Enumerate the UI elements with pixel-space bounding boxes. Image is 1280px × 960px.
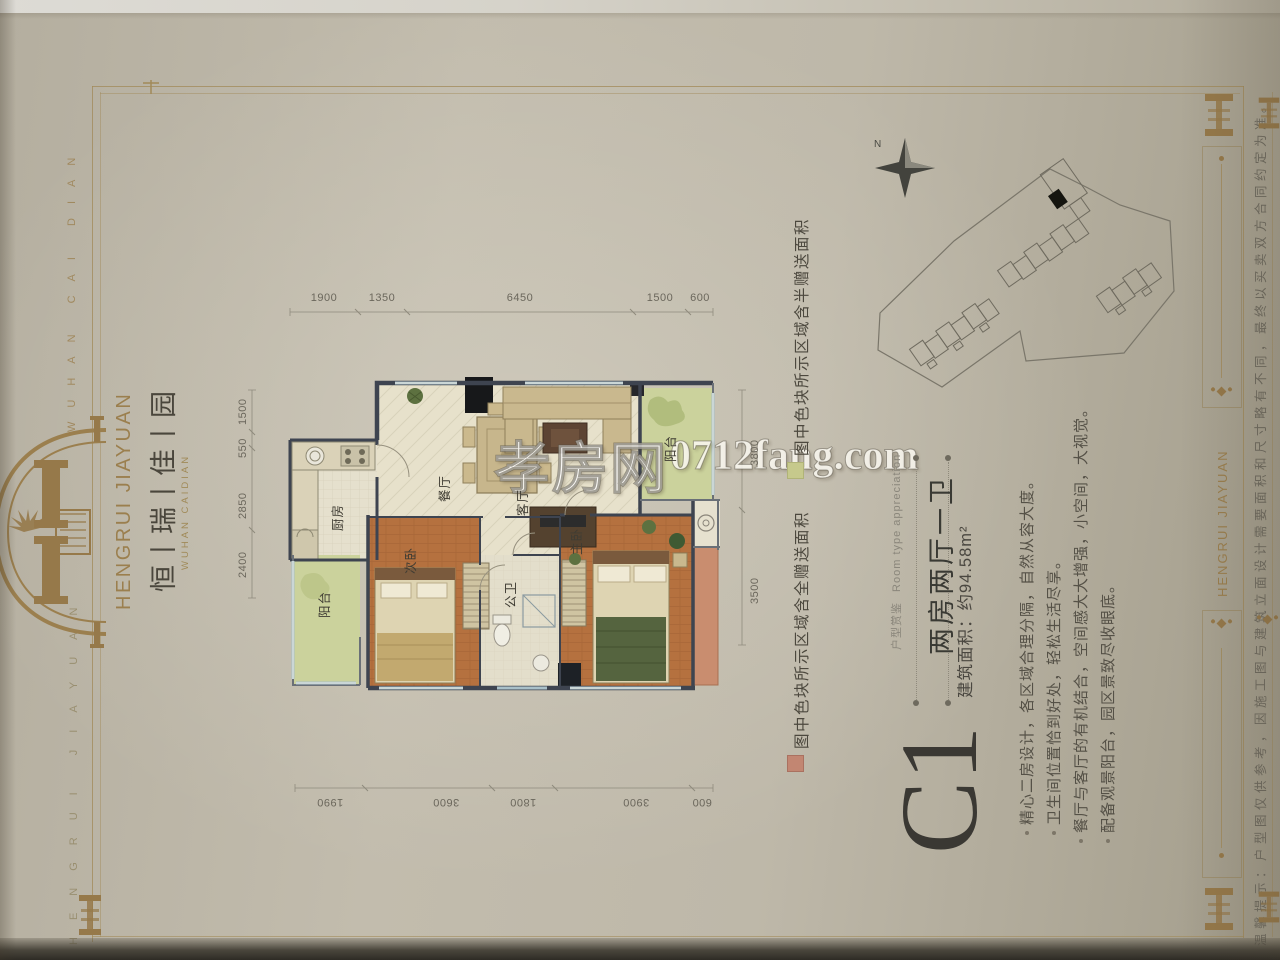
legend-half-text: 图中色块所示区域含半赠送面积 <box>790 218 812 456</box>
room-label-balcony_left: 阳台 <box>314 591 333 618</box>
site-plan: N <box>858 95 1188 405</box>
divider-dot <box>945 455 951 461</box>
feature-2: 卫生间位置恰到好处，轻松生活尽享。 <box>1043 553 1064 835</box>
dim-bottom-1: 3600 <box>433 796 459 808</box>
photo-bottom-edge <box>0 938 1280 960</box>
legend-full-swatch <box>787 755 804 772</box>
dim-left-0: 1500 <box>237 398 249 424</box>
room-label-bedroom2: 次卧 <box>400 547 419 574</box>
section-label-en: Room type appreciation <box>891 454 903 592</box>
corner-seal-icon <box>78 895 102 935</box>
north-label: N <box>874 139 881 150</box>
border-top <box>92 86 1244 87</box>
feature-4: 配备观景阳台，园区景致尽收眼底。 <box>1097 577 1118 843</box>
divider-dotted-1 <box>916 462 917 700</box>
border-top-inner <box>100 93 1240 94</box>
edge-text-top: WUHAN CAI DIAN <box>66 144 78 432</box>
floor-plan <box>225 265 805 835</box>
photo-top-edge <box>0 0 1280 13</box>
bullet-icon <box>1025 831 1029 835</box>
dim-top-1: 1350 <box>369 292 395 304</box>
brochure-photo: WUHAN CAI DIAN HENGRUI JIAYUAN HENGRUI J… <box>0 0 1280 960</box>
brand-subtitle: WUHAN CAIDIAN <box>180 454 191 570</box>
photo-right-shadow <box>1180 0 1280 960</box>
feature-text: 精心二房设计，各区域合理分隔，自然从容大度。 <box>1019 473 1036 825</box>
feature-text: 餐厅与客厅的有机结合，空间感大大增强，小空间，大视觉。 <box>1073 401 1090 833</box>
dim-right-0: 3800 <box>749 439 761 465</box>
dim-top-4: 600 <box>690 292 710 304</box>
photo-left-shadow <box>0 0 16 960</box>
room-label-kitchen: 厨房 <box>327 504 346 531</box>
dim-left-2: 2850 <box>237 492 249 518</box>
bullet-icon <box>1106 839 1110 843</box>
legend-full-text: 图中色块所示区域含全赠送面积 <box>790 511 812 749</box>
dim-left-1: 550 <box>237 438 249 458</box>
section-label-cn: 户型赏鉴 <box>891 602 903 650</box>
room-label-living: 客厅 <box>512 489 531 516</box>
divider-dot <box>913 455 919 461</box>
brand-name-en: HENGRUI JIAYUAN <box>113 392 136 610</box>
dim-top-0: 1900 <box>311 292 337 304</box>
bullet-icon <box>1052 831 1056 835</box>
gate-logo <box>0 412 114 652</box>
dim-top-2: 6450 <box>507 292 533 304</box>
north-compass: N <box>874 138 935 198</box>
brand-name-cn: 恒丨瑞丨佳丨园 <box>142 389 181 592</box>
section-label: 户型赏鉴 Room type appreciation <box>888 454 904 650</box>
feature-text: 配备观景阳台，园区景致尽收眼底。 <box>1100 577 1117 833</box>
room-label-master: 主卧 <box>566 528 585 555</box>
bullet-icon <box>1079 839 1083 843</box>
feature-3: 餐厅与客厅的有机结合，空间感大大增强，小空间，大视觉。 <box>1070 401 1091 843</box>
photo-top-shadow <box>0 13 1280 19</box>
dim-bottom-0: 1990 <box>317 796 343 808</box>
unit-code: C1 <box>876 726 1003 854</box>
dim-right-1: 3500 <box>749 577 761 603</box>
dim-top-3: 1500 <box>647 292 673 304</box>
room-label-balcony_top: 阳台 <box>660 435 679 462</box>
dim-bottom-4: 600 <box>692 796 712 808</box>
room-label-dining: 餐厅 <box>434 475 453 502</box>
dim-bottom-2: 1800 <box>510 796 536 808</box>
divider-dot <box>913 700 919 706</box>
border-ornament-top2 <box>143 82 159 84</box>
feature-1: 精心二房设计，各区域合理分隔，自然从容大度。 <box>1016 473 1037 835</box>
dim-bottom-3: 3900 <box>623 796 649 808</box>
unit-area: 建筑面积：约94.58m² <box>952 525 976 698</box>
feature-text: 卫生间位置恰到好处，轻松生活尽享。 <box>1046 553 1063 825</box>
buildings <box>910 159 1165 373</box>
room-label-bath: 公卫 <box>500 581 519 608</box>
dim-left-3: 2400 <box>237 551 249 577</box>
border-bottom <box>92 936 1244 937</box>
bottom-block <box>558 663 581 688</box>
divider-dot <box>945 700 951 706</box>
legend-half-swatch <box>787 462 804 479</box>
highlighted-unit <box>1048 189 1068 210</box>
